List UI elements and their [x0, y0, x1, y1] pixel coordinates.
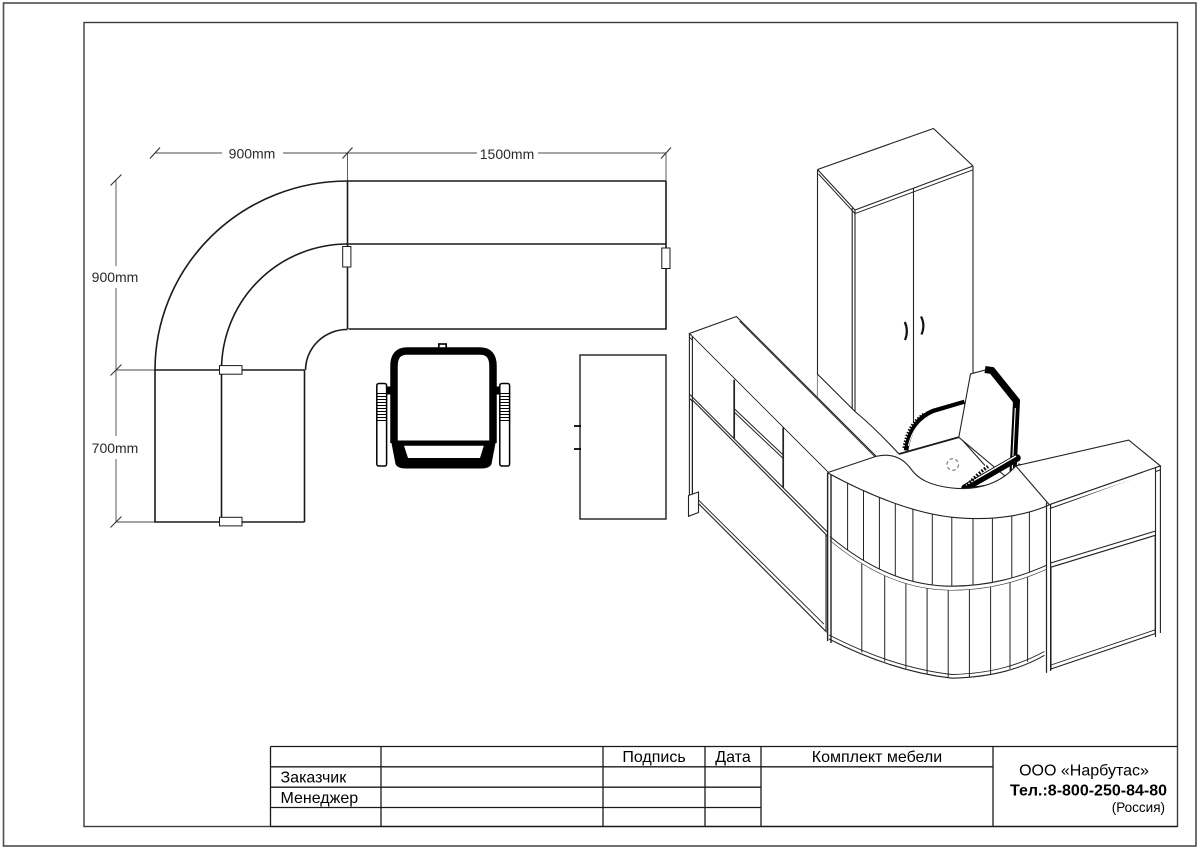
svg-text:Дата: Дата [715, 749, 751, 766]
svg-text:900mm: 900mm [229, 146, 276, 162]
svg-text:Комплект мебели: Комплект мебели [812, 749, 942, 766]
svg-text:Менеджер: Менеджер [281, 790, 359, 807]
svg-text:Подпись: Подпись [622, 749, 685, 766]
svg-text:1500mm: 1500mm [480, 146, 534, 162]
svg-text:700mm: 700mm [92, 440, 139, 456]
svg-text:Тел.:8-800-250-84-80: Тел.:8-800-250-84-80 [1010, 783, 1167, 800]
svg-text:900mm: 900mm [92, 269, 139, 285]
svg-text:Заказчик: Заказчик [281, 770, 348, 787]
svg-text:(Россия): (Россия) [1112, 800, 1165, 815]
svg-text:ООО «Нарбутас»: ООО «Нарбутас» [1019, 763, 1149, 780]
